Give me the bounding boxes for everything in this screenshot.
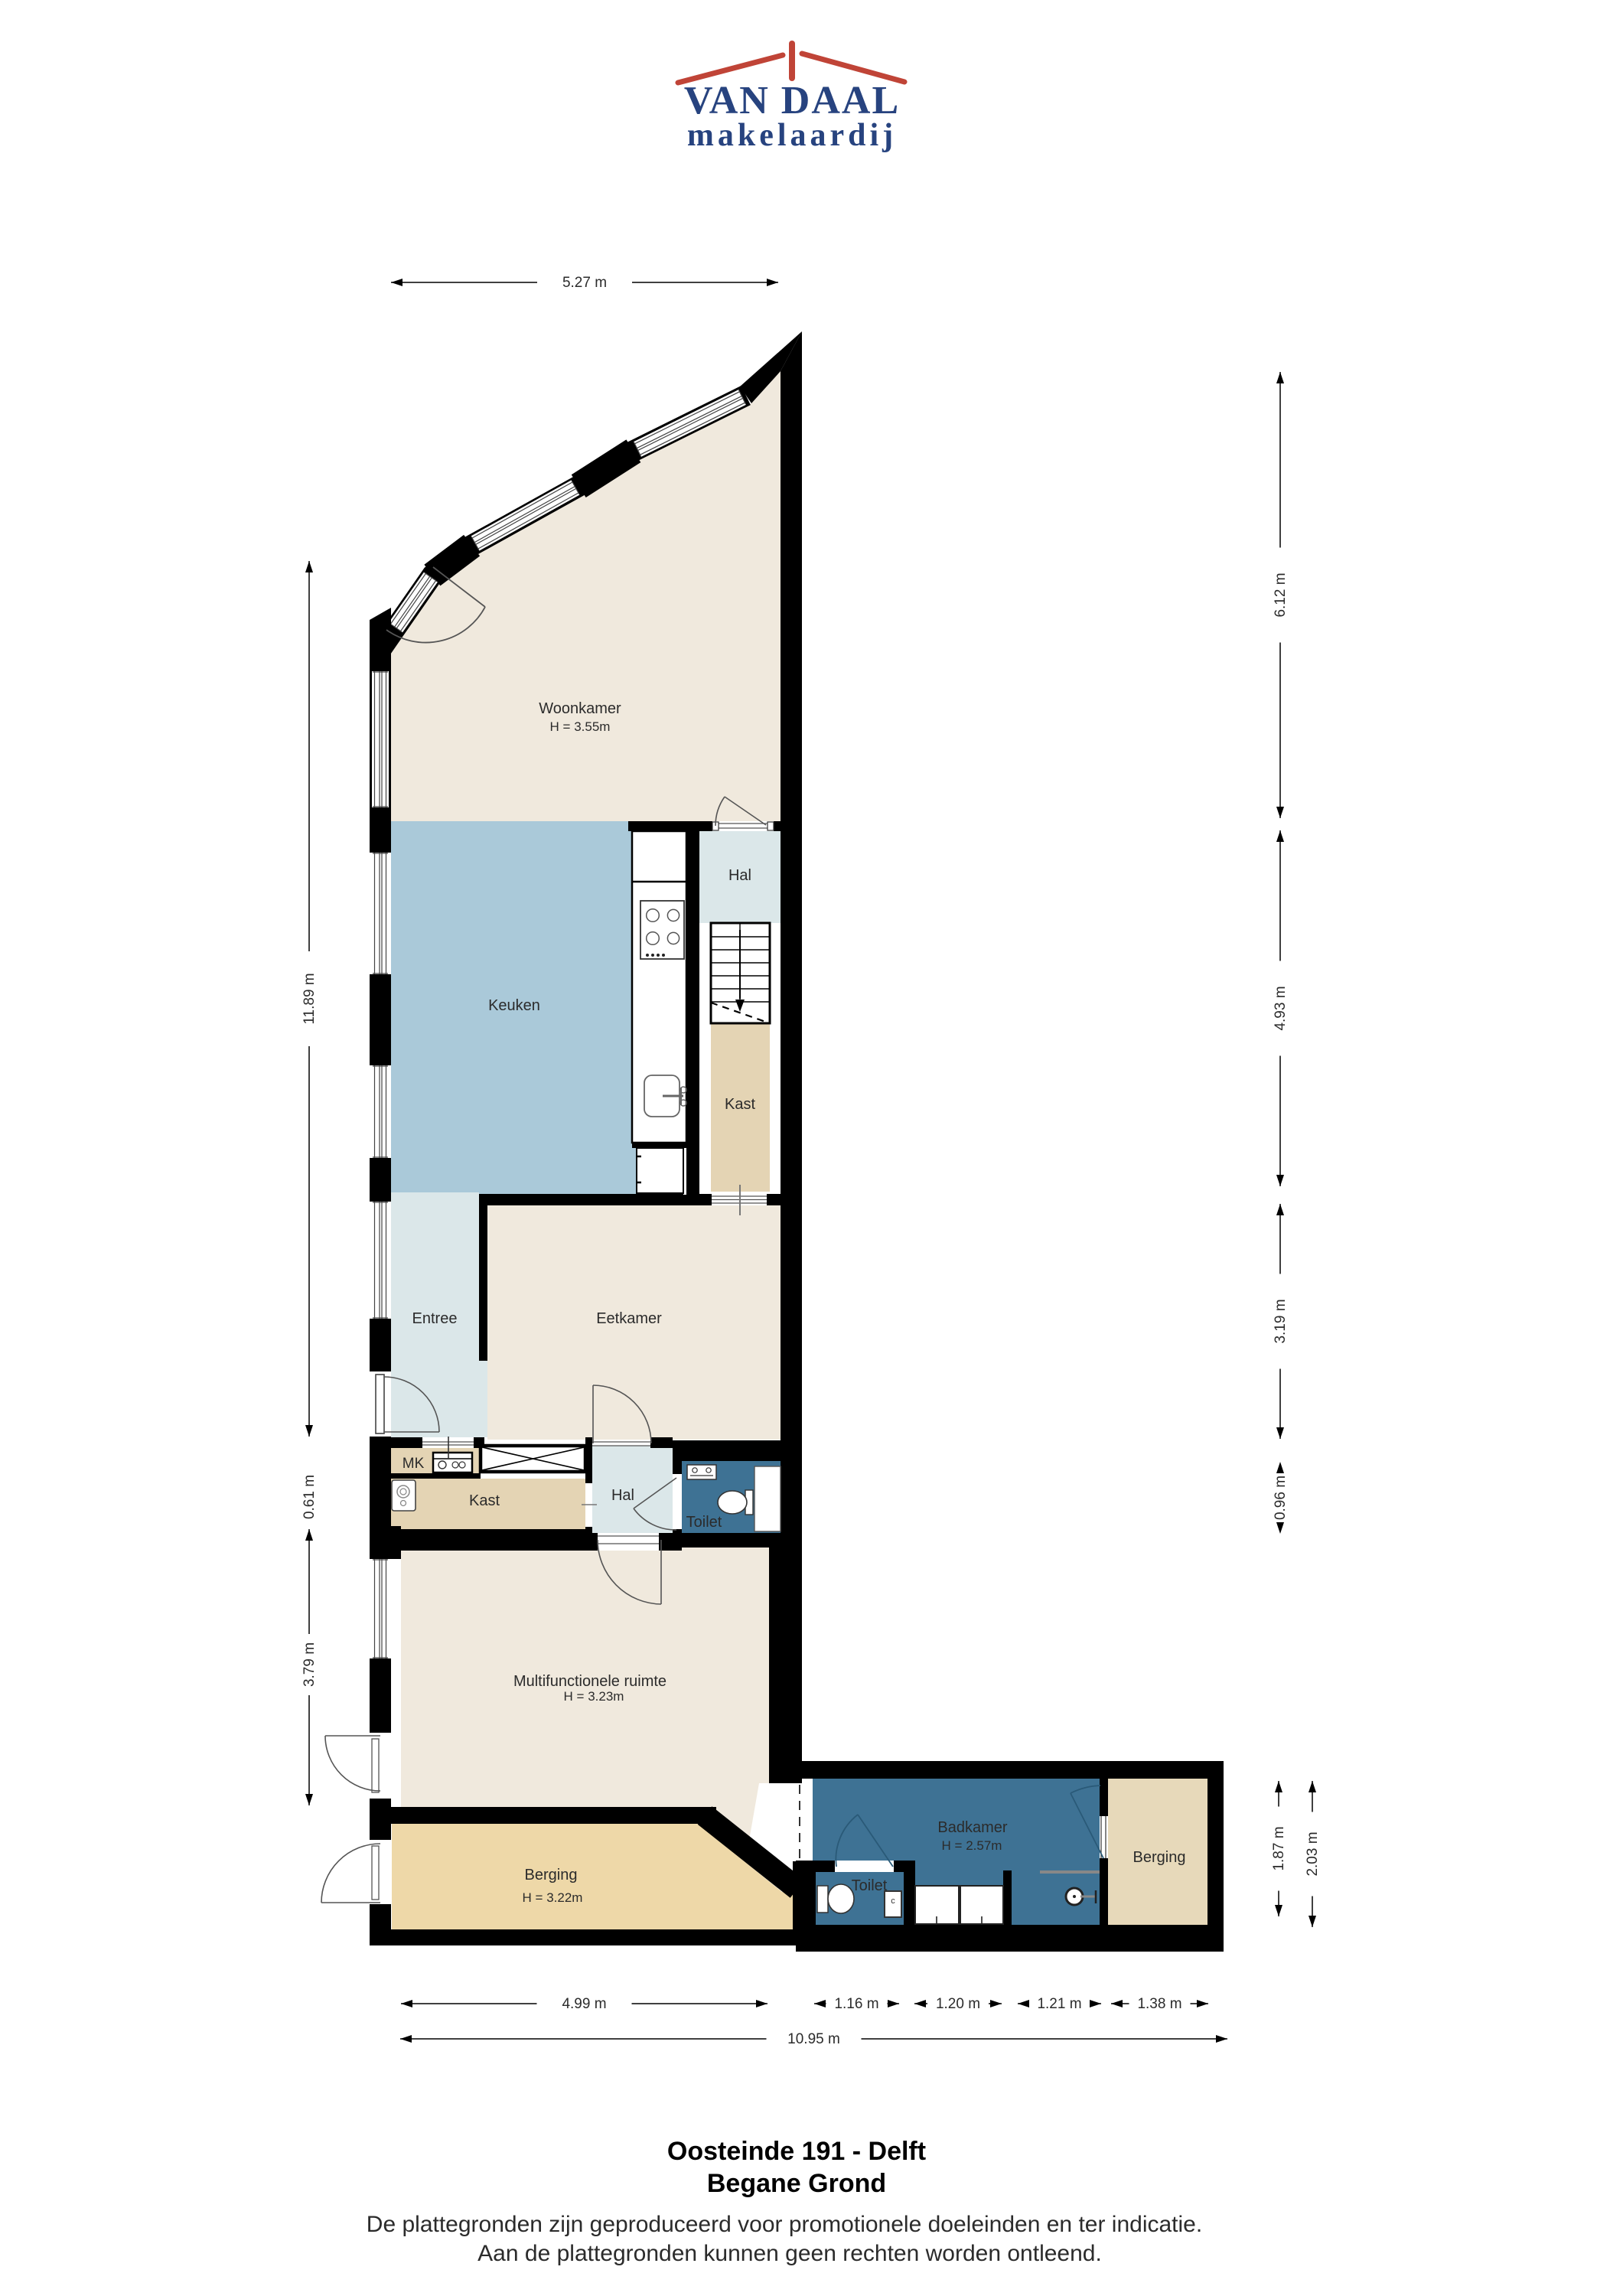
svg-text:0.96 m: 0.96 m — [1273, 1476, 1289, 1520]
svg-text:1.38 m: 1.38 m — [1137, 1996, 1181, 2012]
svg-text:Eetkamer: Eetkamer — [596, 1310, 662, 1327]
svg-text:1.87 m: 1.87 m — [1271, 1826, 1287, 1870]
svg-text:1.16 m: 1.16 m — [834, 1996, 878, 2012]
svg-text:1.20 m: 1.20 m — [936, 1996, 980, 2012]
svg-text:H = 3.55m: H = 3.55m — [550, 719, 611, 734]
svg-text:3.79 m: 3.79 m — [301, 1642, 318, 1687]
svg-text:6.12 m: 6.12 m — [1273, 572, 1289, 617]
svg-text:Toilet: Toilet — [686, 1514, 722, 1531]
svg-text:H = 3.23m: H = 3.23m — [564, 1689, 624, 1704]
svg-text:Woonkamer: Woonkamer — [539, 700, 621, 717]
svg-text:Hal: Hal — [611, 1487, 634, 1504]
svg-text:VAN DAAL: VAN DAAL — [684, 79, 900, 122]
svg-text:Kast: Kast — [725, 1096, 755, 1113]
svg-text:3.19 m: 3.19 m — [1273, 1299, 1289, 1343]
svg-text:0.61 m: 0.61 m — [301, 1475, 318, 1519]
svg-text:De plattegronden zijn geproduc: De plattegronden zijn geproduceerd voor … — [367, 2212, 1202, 2237]
svg-text:H = 3.22m: H = 3.22m — [523, 1890, 583, 1905]
svg-text:Entree: Entree — [412, 1310, 458, 1327]
svg-text:4.99 m: 4.99 m — [562, 1996, 606, 2012]
svg-text:makelaardij: makelaardij — [687, 118, 897, 153]
svg-text:1.21 m: 1.21 m — [1037, 1996, 1081, 2012]
svg-text:Keuken: Keuken — [488, 997, 540, 1014]
svg-text:c: c — [891, 1896, 895, 1906]
svg-text:Berging: Berging — [1133, 1849, 1186, 1866]
svg-text:Badkamer: Badkamer — [937, 1819, 1007, 1836]
svg-text:Oosteinde 191 - Delft: Oosteinde 191 - Delft — [667, 2137, 926, 2166]
svg-text:H = 2.57m: H = 2.57m — [942, 1838, 1002, 1853]
svg-text:5.27 m: 5.27 m — [562, 275, 607, 291]
svg-text:MK: MK — [402, 1456, 425, 1472]
svg-text:Hal: Hal — [728, 867, 751, 884]
svg-text:Toilet: Toilet — [852, 1877, 888, 1894]
svg-text:10.95 m: 10.95 m — [787, 2031, 840, 2047]
svg-text:Kast: Kast — [469, 1492, 500, 1509]
svg-text:11.89 m: 11.89 m — [301, 973, 318, 1024]
svg-text:2.03 m: 2.03 m — [1305, 1831, 1321, 1876]
svg-text:Aan de plattegronden kunnen ge: Aan de plattegronden kunnen geen rechten… — [477, 2241, 1102, 2266]
svg-text:Berging: Berging — [525, 1867, 578, 1883]
svg-text:4.93 m: 4.93 m — [1273, 986, 1289, 1030]
svg-text:Multifunctionele ruimte: Multifunctionele ruimte — [513, 1673, 666, 1690]
svg-text:Begane Grond: Begane Grond — [707, 2169, 886, 2198]
